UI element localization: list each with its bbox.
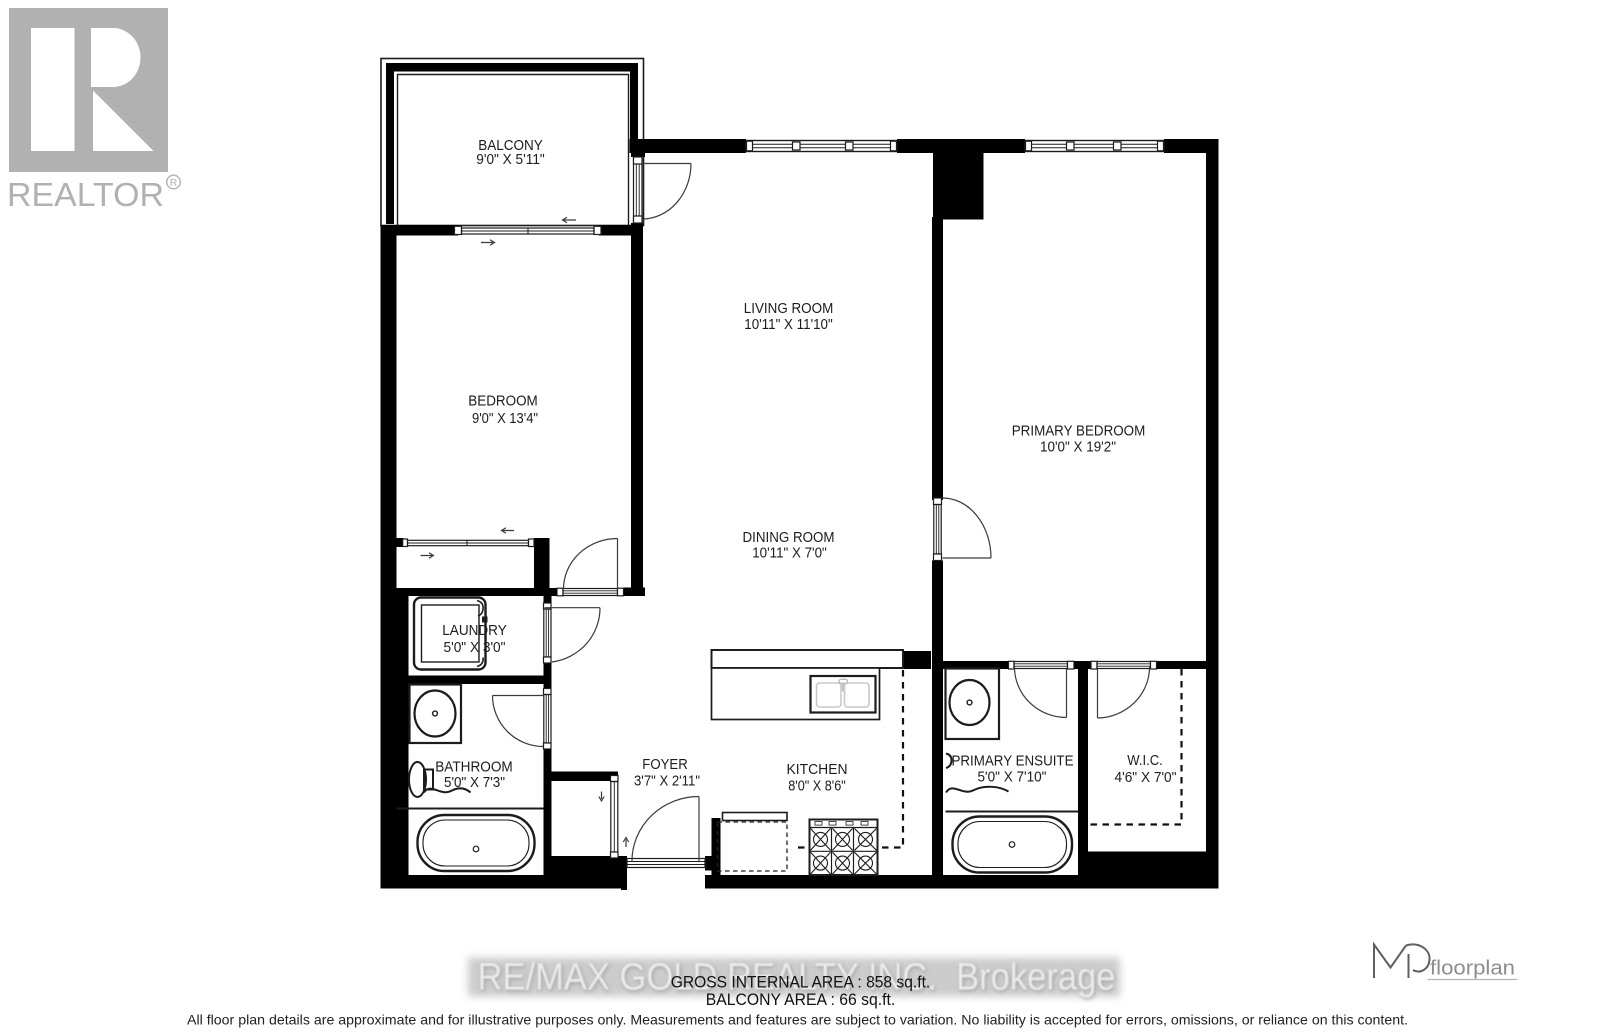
svg-text:R: R: [170, 177, 178, 189]
svg-text:5'0" X 7'10": 5'0" X 7'10": [978, 770, 1047, 786]
svg-text:GROSS INTERNAL AREA : 858 sq.f: GROSS INTERNAL AREA : 858 sq.ft.: [671, 973, 931, 992]
svg-text:4'6" X 7'0": 4'6" X 7'0": [1115, 770, 1177, 786]
svg-text:DINING ROOM: DINING ROOM: [743, 529, 835, 546]
svg-text:10'11" X 11'10": 10'11" X 11'10": [744, 317, 833, 333]
svg-text:9'0" X 13'4": 9'0" X 13'4": [472, 411, 538, 427]
svg-text:PRIMARY BEDROOM: PRIMARY BEDROOM: [1012, 423, 1146, 440]
svg-text:LIVING ROOM: LIVING ROOM: [744, 300, 834, 317]
svg-text:BATHROOM: BATHROOM: [435, 759, 513, 776]
svg-text:8'0" X 8'6": 8'0" X 8'6": [788, 779, 846, 795]
svg-text:REALTOR: REALTOR: [7, 177, 164, 214]
svg-text:floorplan: floorplan: [1430, 957, 1515, 980]
svg-text:BEDROOM: BEDROOM: [468, 393, 538, 410]
svg-text:PRIMARY ENSUITE: PRIMARY ENSUITE: [952, 753, 1074, 770]
svg-text:5'0" X 3'0": 5'0" X 3'0": [444, 640, 506, 656]
svg-text:10'11" X 7'0": 10'11" X 7'0": [752, 546, 827, 562]
svg-text:LAUNDRY: LAUNDRY: [442, 622, 507, 639]
svg-text:All floor plan details are app: All floor plan details are approximate a…: [187, 1013, 1408, 1028]
svg-text:10'0" X 19'2": 10'0" X 19'2": [1040, 440, 1116, 456]
svg-text:3'7" X 2'11": 3'7" X 2'11": [634, 774, 700, 790]
svg-text:KITCHEN: KITCHEN: [787, 761, 848, 778]
svg-text:FOYER: FOYER: [642, 756, 688, 773]
svg-text:5'0" X 7'3": 5'0" X 7'3": [444, 775, 505, 791]
svg-text:BALCONY AREA : 66 sq.ft.: BALCONY AREA : 66 sq.ft.: [706, 990, 896, 1009]
svg-text:W.I.C.: W.I.C.: [1127, 752, 1163, 769]
svg-text:9'0" X 5'11": 9'0" X 5'11": [476, 152, 545, 168]
